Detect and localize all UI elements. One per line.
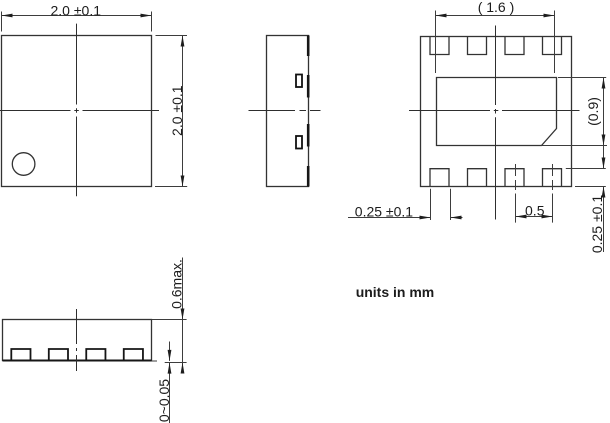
svg-text:0~0.05: 0~0.05 <box>156 379 172 422</box>
svg-text:( 1.6 ): ( 1.6 ) <box>478 0 515 15</box>
svg-text:units in mm: units in mm <box>356 284 435 300</box>
svg-text:2.0 ±0.1: 2.0 ±0.1 <box>169 85 185 136</box>
svg-text:2.0 ±0.1: 2.0 ±0.1 <box>51 3 102 19</box>
svg-text:0.25 ±0.1: 0.25 ±0.1 <box>355 204 413 220</box>
svg-text:0.25 ±0.1: 0.25 ±0.1 <box>589 195 605 253</box>
svg-text:0.6max.: 0.6max. <box>168 259 184 309</box>
svg-text:(0.9): (0.9) <box>585 97 601 126</box>
svg-text:0.5: 0.5 <box>525 202 545 218</box>
